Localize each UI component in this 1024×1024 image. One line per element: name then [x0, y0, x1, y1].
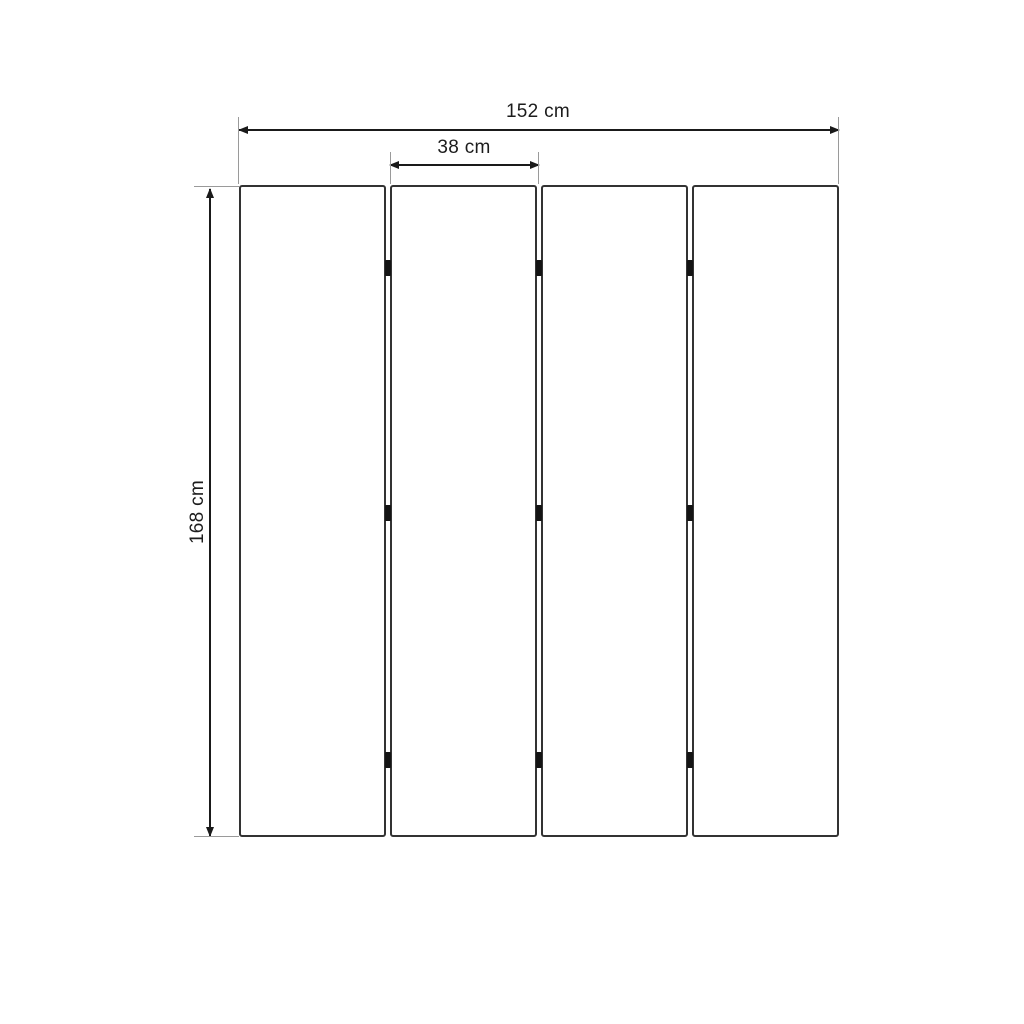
panels-row [239, 185, 839, 837]
height-dimension-line [209, 189, 211, 836]
extension-line-panel-left [390, 152, 391, 184]
total-width-label: 152 cm [506, 101, 570, 123]
hinge-junction2-1 [536, 260, 542, 276]
panel-1 [239, 185, 386, 837]
height-label: 168 cm [187, 480, 209, 544]
hinge-junction3-1 [687, 260, 693, 276]
total-width-dimension-line [239, 129, 839, 131]
panel-width-dimension-line [390, 164, 539, 166]
hinge-junction3-2 [687, 505, 693, 521]
panel-4 [692, 185, 839, 837]
diagram-canvas: 152 cm 38 cm 168 cm [0, 0, 1024, 1024]
hinge-junction2-3 [536, 752, 542, 768]
hinge-junction3-3 [687, 752, 693, 768]
extension-line-height-top [194, 186, 239, 187]
hinge-junction2-2 [536, 505, 542, 521]
hinge-junction1-3 [385, 752, 391, 768]
panel-width-label: 38 cm [437, 137, 490, 159]
hinge-junction1-2 [385, 505, 391, 521]
extension-line-height-bottom [194, 836, 239, 837]
panel-2 [390, 185, 537, 837]
arrow-up-icon [206, 188, 214, 198]
panel-3 [541, 185, 688, 837]
extension-line-total-right [838, 117, 839, 184]
hinge-junction1-1 [385, 260, 391, 276]
extension-line-total-left [238, 117, 239, 184]
extension-line-panel-right [538, 152, 539, 184]
arrow-left-icon [238, 126, 248, 134]
